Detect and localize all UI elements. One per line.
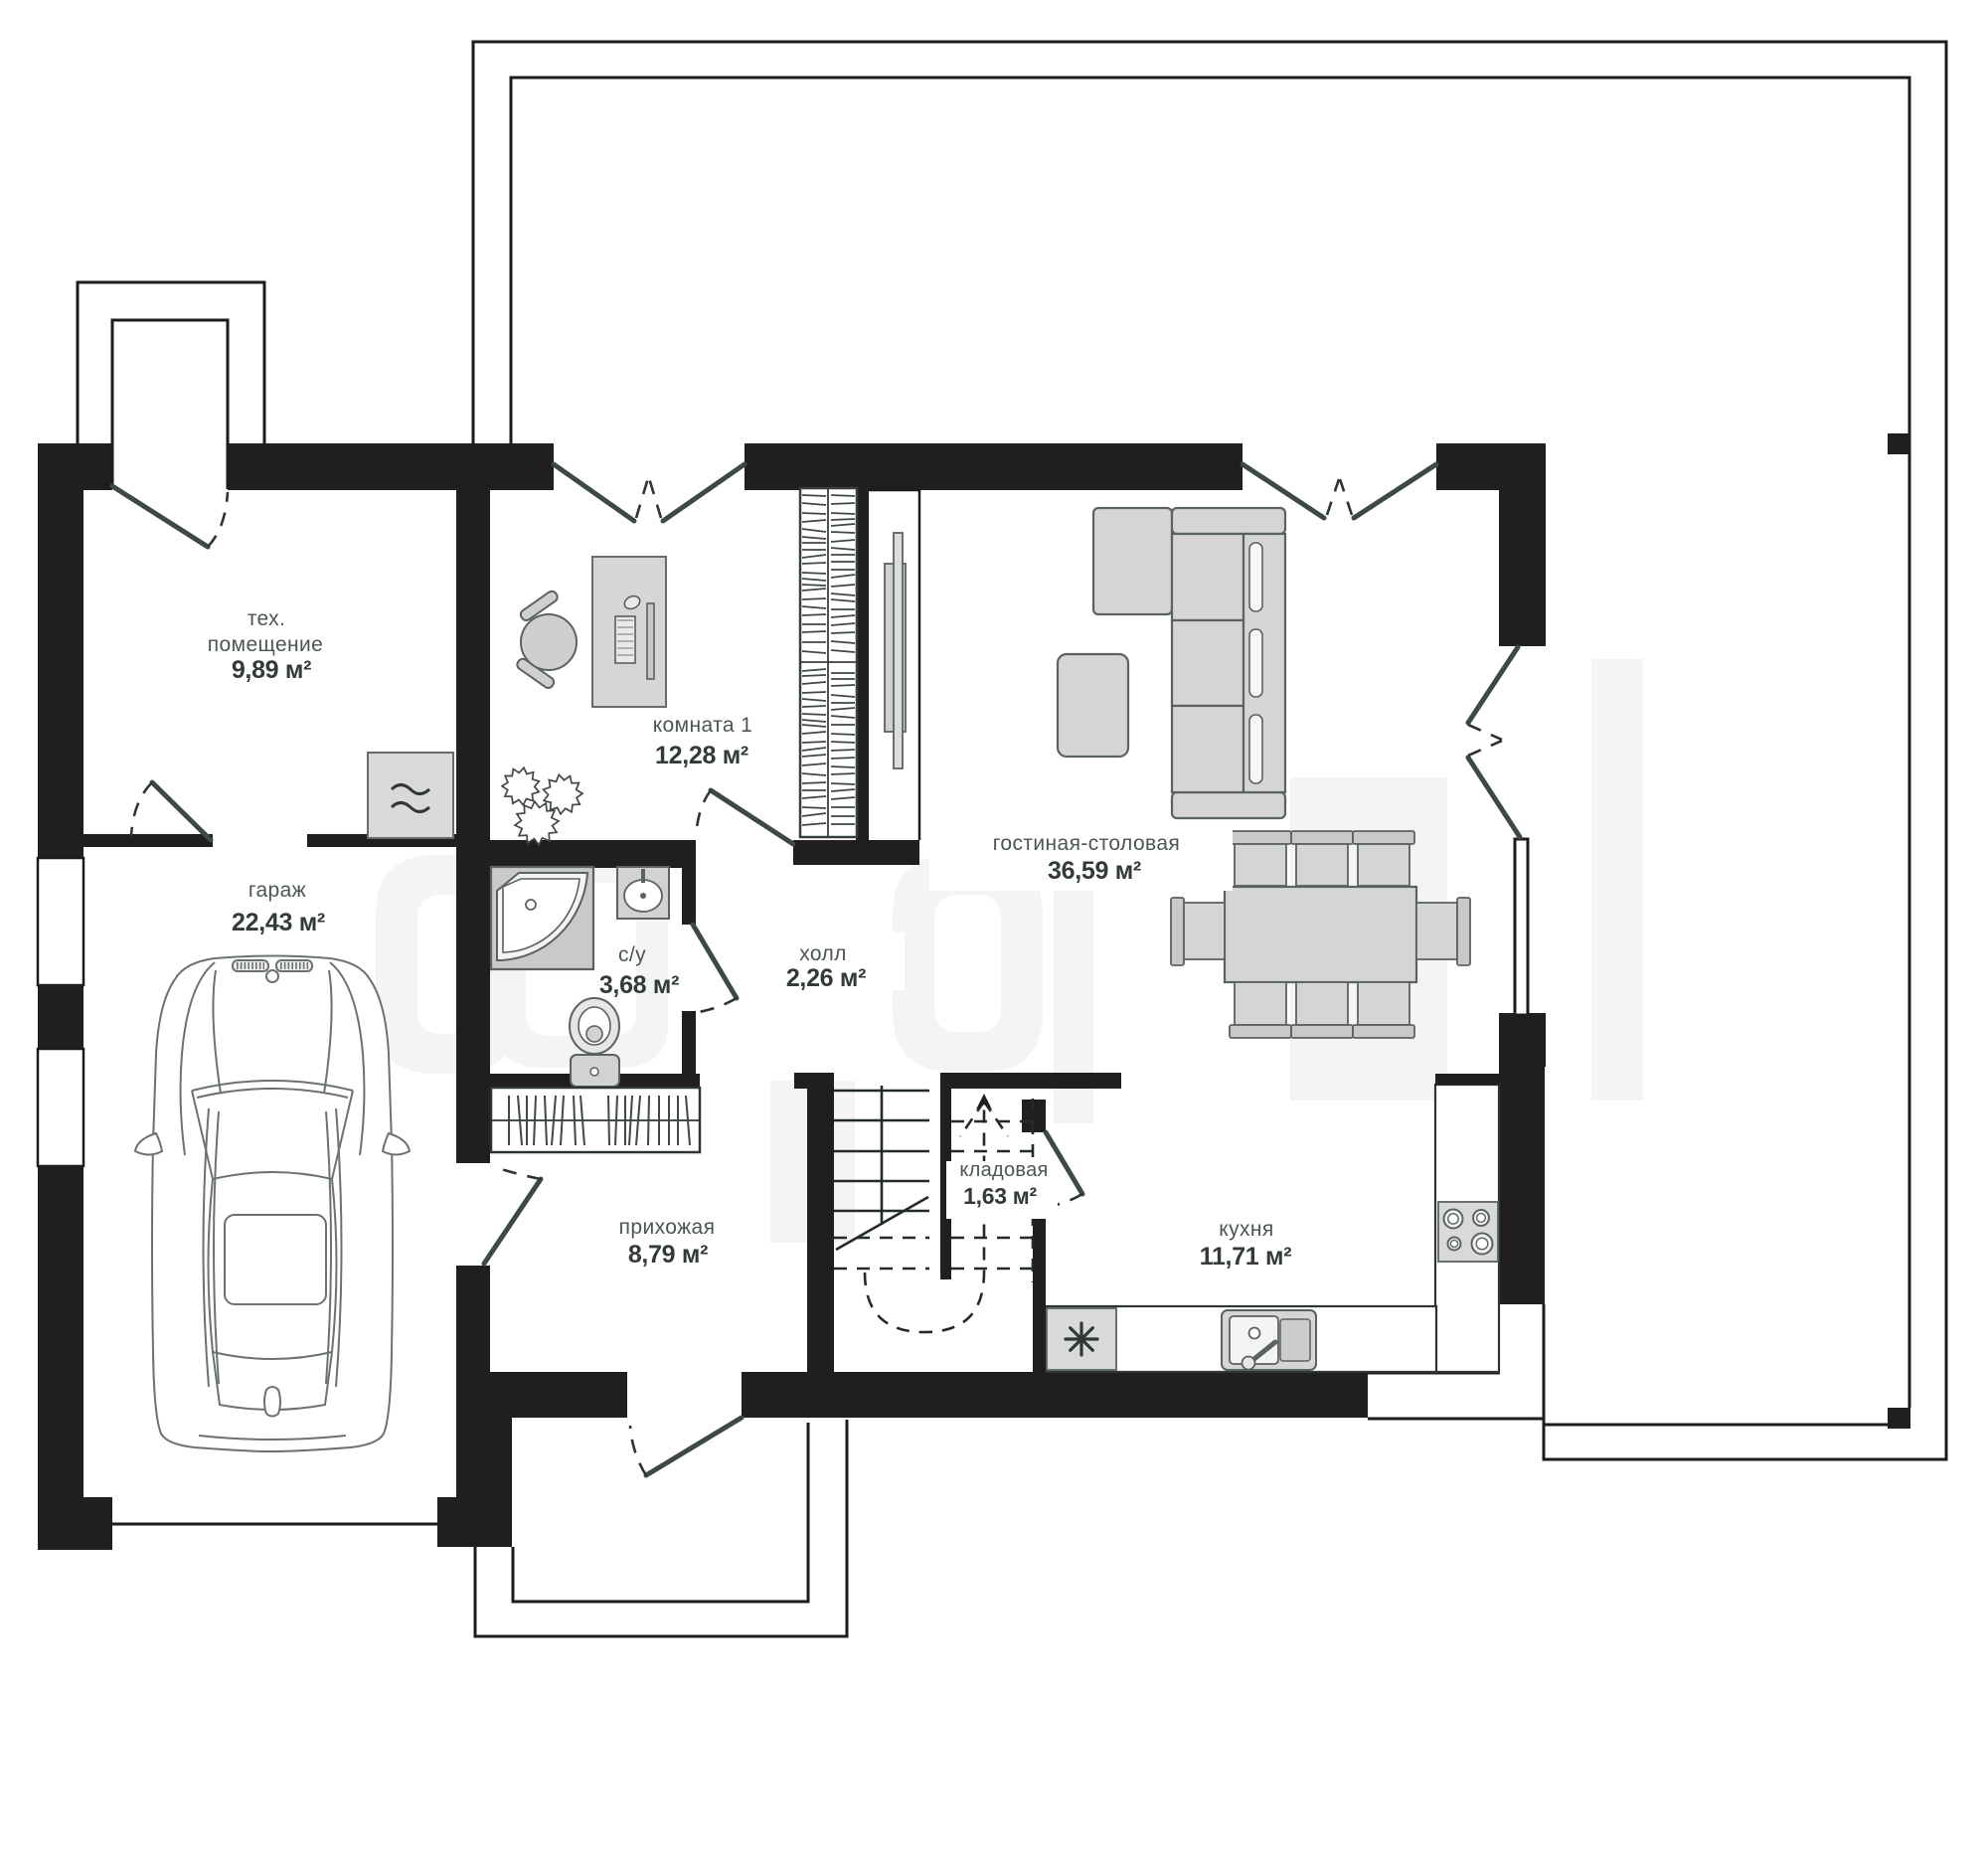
svg-text:кладовая: кладовая — [959, 1159, 1048, 1181]
svg-text:помещение: помещение — [208, 633, 324, 656]
svg-text:с/у: с/у — [618, 943, 646, 966]
svg-text:3,68 м²: 3,68 м² — [599, 971, 679, 999]
svg-text:36,59 м²: 36,59 м² — [1048, 857, 1141, 885]
svg-text:11,71 м²: 11,71 м² — [1200, 1243, 1292, 1271]
svg-text:гараж: гараж — [248, 879, 306, 902]
svg-text:тех.: тех. — [248, 607, 286, 630]
svg-text:1,63 м²: 1,63 м² — [963, 1183, 1037, 1209]
svg-text:кухня: кухня — [1219, 1218, 1273, 1241]
svg-text:холл: холл — [799, 942, 847, 965]
svg-text:2,26 м²: 2,26 м² — [786, 964, 866, 992]
svg-text:прихожая: прихожая — [619, 1216, 716, 1239]
svg-text:22,43 м²: 22,43 м² — [232, 909, 325, 936]
svg-text:гостиная-столовая: гостиная-столовая — [993, 832, 1180, 855]
svg-text:9,89 м²: 9,89 м² — [232, 656, 311, 684]
svg-text:12,28 м²: 12,28 м² — [655, 742, 748, 769]
svg-text:8,79 м²: 8,79 м² — [628, 1241, 708, 1269]
svg-text:комната 1: комната 1 — [653, 714, 753, 737]
